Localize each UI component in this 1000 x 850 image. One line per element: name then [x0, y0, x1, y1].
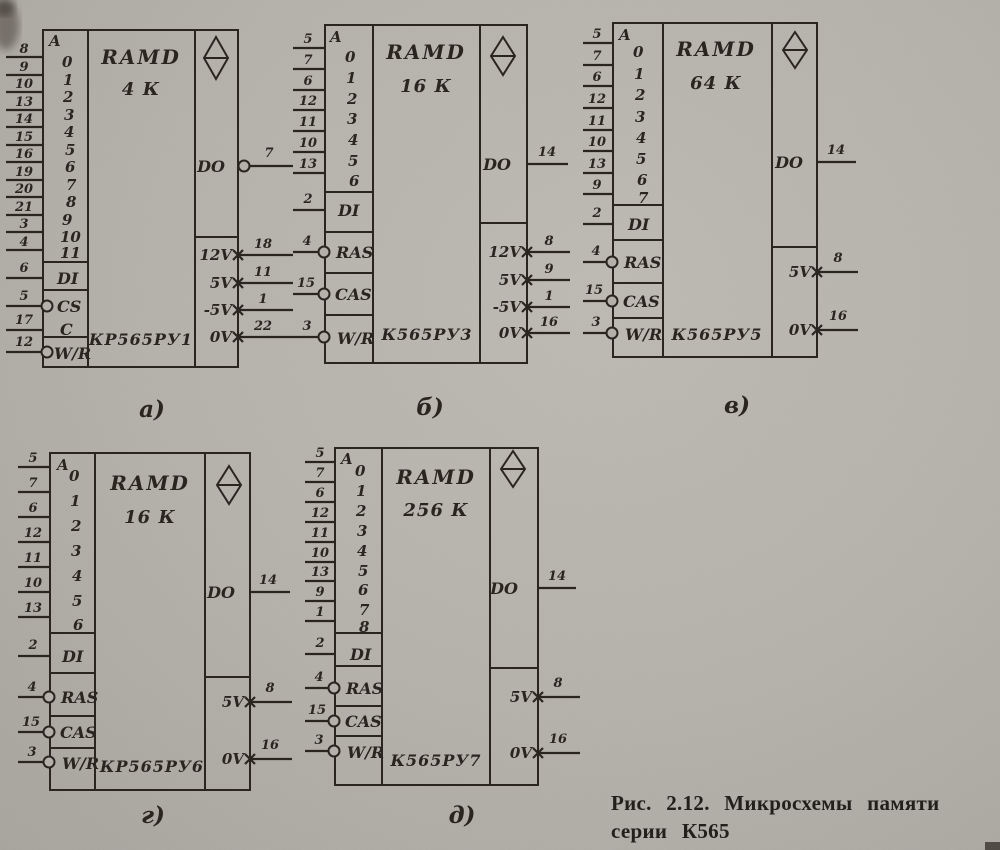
- addr-bit-label: 4: [72, 567, 82, 585]
- ras-pin-number: 4: [302, 234, 311, 249]
- wr-pin-number: 3: [302, 319, 311, 334]
- addr-pin-number: 5: [28, 451, 37, 466]
- addr-pin-number: 13: [24, 601, 42, 616]
- power-pin-number: 1: [544, 289, 553, 304]
- power-label-0v: 0V: [789, 321, 812, 339]
- diagram-letter: д): [449, 802, 476, 829]
- chip-name: КР565РУ6: [99, 757, 204, 776]
- inversion-bubble-cas: [44, 727, 55, 738]
- di-label: DI: [337, 201, 360, 220]
- addr-header: A: [47, 32, 61, 50]
- addr-bit-label: 3: [357, 522, 367, 540]
- addr-pin-number: 6: [28, 501, 37, 516]
- addr-pin-number: 13: [15, 95, 33, 110]
- addr-bit-label: 3: [71, 542, 81, 560]
- addr-header: A: [617, 26, 631, 44]
- size-label: 64 К: [690, 73, 742, 94]
- di-label: DI: [627, 215, 650, 234]
- diagram-letter: а): [139, 396, 165, 423]
- addr-bit-label: 0: [633, 43, 644, 61]
- cas-label: CAS: [335, 285, 372, 304]
- addr-pin-number: 3: [19, 217, 28, 232]
- cas-pin-number: 15: [308, 703, 326, 718]
- addr-bit-label: 5: [636, 150, 646, 168]
- power-pin-number: 8: [553, 676, 562, 691]
- power-pin-number: 16: [261, 738, 279, 753]
- c-label: C: [60, 320, 73, 339]
- addr-pin-number: 6: [303, 74, 312, 89]
- chip-name: К565РУ7: [389, 751, 481, 770]
- size-label: 256 К: [402, 500, 468, 521]
- addr-pin-number: 10: [24, 576, 42, 591]
- addr-bit-label: 5: [348, 152, 358, 170]
- addr-bit-label: 7: [638, 189, 649, 207]
- cs-label: CS: [57, 297, 81, 316]
- page-corner-mark: [985, 842, 1000, 850]
- do-label: DO: [482, 155, 511, 174]
- power-label-0v: 0V: [222, 750, 245, 768]
- addr-bit-label: 1: [356, 482, 366, 500]
- addr-pin-number: 6: [315, 486, 324, 501]
- cas-pin-number: 15: [22, 715, 40, 730]
- chip-name: К565РУ3: [380, 325, 472, 344]
- func-label: RAMD: [100, 45, 181, 69]
- addr-pin-number: 21: [14, 200, 33, 215]
- addr-bit-label: 6: [637, 171, 648, 189]
- addr-pin-number: 12: [311, 506, 329, 521]
- di-pin-number: 6: [19, 261, 28, 276]
- addr-pin-number: 10: [311, 546, 329, 561]
- ras-label: RAS: [335, 243, 373, 262]
- power-label-5v: 5V: [210, 274, 233, 292]
- chip-name: К565РУ5: [670, 325, 762, 344]
- wr-label: W/R: [337, 329, 374, 348]
- addr-pin-number: 15: [15, 130, 33, 145]
- func-label: RAMD: [395, 465, 476, 489]
- addr-pin-number: 10: [299, 136, 317, 151]
- power-pin-number: 8: [833, 251, 842, 266]
- addr-bit-label: 4: [636, 129, 646, 147]
- wr-label: W/R: [625, 325, 662, 344]
- addr-pin-number: 7: [28, 476, 37, 491]
- power-label-0v: 0V: [499, 324, 522, 342]
- inversion-bubble-cas: [607, 296, 618, 307]
- addr-pin-number: 11: [299, 115, 317, 130]
- do-pin-number: 14: [259, 573, 277, 588]
- power-label-5v: 5V: [499, 271, 522, 289]
- power-label-5v: 5V: [510, 688, 533, 706]
- addr-pin-number: 11: [24, 551, 42, 566]
- addr-pin-number: 1: [315, 605, 324, 620]
- power-label-minus5v: -5V: [493, 298, 523, 316]
- ras-label: RAS: [623, 253, 661, 272]
- c-pin-number: 17: [15, 313, 33, 328]
- power-pin-number: 18: [254, 237, 272, 252]
- size-label: 16 К: [400, 76, 452, 97]
- inversion-bubble-ras: [319, 247, 330, 258]
- inversion-bubble-wr: [607, 328, 618, 339]
- addr-pin-number: 6: [592, 70, 601, 85]
- addr-bit-label: 3: [347, 110, 357, 128]
- addr-bit-label: 1: [346, 69, 356, 87]
- wr-pin-number: 12: [15, 335, 33, 350]
- figure-canvas: A 0 1 2 3 4 5 6 7 8 9 10 11 8 9 10 13 14…: [0, 0, 1000, 850]
- addr-header: A: [328, 28, 342, 46]
- cs-pin-number: 5: [19, 289, 28, 304]
- power-label-0v: 0V: [210, 328, 233, 346]
- scanned-book-page: A 0 1 2 3 4 5 6 7 8 9 10 11 8 9 10 13 14…: [0, 0, 1000, 850]
- addr-pin-number: 5: [303, 32, 312, 47]
- power-label-5v: 5V: [789, 263, 812, 281]
- addr-bit-label: 7: [66, 176, 77, 194]
- power-pin-number: 8: [544, 234, 553, 249]
- do-label: DO: [196, 157, 225, 176]
- addr-pin-number: 5: [592, 27, 601, 42]
- addr-bit-label: 6: [73, 616, 84, 634]
- di-pin-number: 2: [314, 636, 324, 651]
- addr-pin-number: 12: [24, 526, 42, 541]
- addr-bit-label: 5: [72, 592, 82, 610]
- inversion-bubble-cas: [319, 289, 330, 300]
- power-pin-number: 8: [265, 681, 274, 696]
- power-label-5v: 5V: [222, 693, 245, 711]
- cas-label: CAS: [623, 292, 660, 311]
- addr-bit-label: 1: [70, 492, 80, 510]
- addr-pin-number: 10: [588, 135, 606, 150]
- power-label-12v: 12V: [199, 246, 233, 264]
- addr-bit-label: 3: [64, 106, 74, 124]
- wr-pin-number: 3: [591, 315, 600, 330]
- ras-label: RAS: [60, 688, 98, 707]
- ras-pin-number: 4: [591, 244, 600, 259]
- addr-pin-number: 13: [588, 157, 606, 172]
- inversion-bubble-wr: [42, 347, 53, 358]
- addr-pin-number: 20: [14, 182, 33, 197]
- addr-bit-label: 2: [346, 90, 357, 108]
- addr-pin-number: 11: [311, 526, 329, 541]
- inversion-bubble-ras: [607, 257, 618, 268]
- addr-bit-label: 8: [66, 193, 77, 211]
- paper-grain: [0, 0, 1000, 850]
- addr-pin-number: 13: [311, 565, 329, 580]
- wr-label: W/R: [347, 743, 384, 762]
- addr-bit-label: 0: [69, 467, 80, 485]
- cas-pin-number: 15: [297, 276, 315, 291]
- wr-pin-number: 3: [314, 733, 323, 748]
- addr-pin-number: 19: [15, 165, 33, 180]
- addr-pin-number: 14: [15, 112, 33, 127]
- do-pin-number: 14: [538, 145, 556, 160]
- power-pin-number: 9: [544, 262, 553, 277]
- do-label: DO: [206, 583, 235, 602]
- addr-bit-label: 6: [65, 158, 76, 176]
- di-label: DI: [56, 269, 79, 288]
- wr-label: W/R: [54, 344, 91, 363]
- ras-pin-number: 4: [27, 680, 36, 695]
- addr-pin-number: 5: [315, 446, 324, 461]
- power-pin-number: 16: [549, 732, 567, 747]
- addr-bit-label: 2: [70, 517, 81, 535]
- addr-pin-number: 12: [588, 92, 606, 107]
- inversion-bubble-cas: [329, 716, 340, 727]
- ras-label: RAS: [345, 679, 383, 698]
- figure-caption-line1: Рис. 2.12. Микросхемы памяти: [611, 791, 940, 815]
- di-pin-number: 2: [302, 192, 312, 207]
- power-pin-number: 16: [540, 315, 558, 330]
- cas-label: CAS: [345, 712, 382, 731]
- addr-pin-number: 9: [19, 60, 28, 75]
- inversion-bubble-wr: [44, 757, 55, 768]
- addr-bit-label: 0: [62, 53, 73, 71]
- addr-header: A: [55, 456, 69, 474]
- do-pin-number: 14: [827, 143, 845, 158]
- addr-pin-number: 16: [15, 147, 33, 162]
- addr-bit-label: 2: [355, 502, 366, 520]
- do-label: DO: [774, 153, 803, 172]
- chip-name: КР565РУ1: [88, 330, 193, 349]
- power-label-12v: 12V: [488, 243, 522, 261]
- inversion-bubble-ras: [44, 692, 55, 703]
- func-label: RAMD: [109, 471, 190, 495]
- addr-bit-label: 9: [62, 211, 73, 229]
- do-pin-number: 7: [264, 146, 273, 161]
- addr-pin-number: 4: [19, 235, 28, 250]
- wr-label: W/R: [62, 754, 99, 773]
- addr-bit-label: 5: [65, 141, 75, 159]
- inversion-bubble-wr: [319, 332, 330, 343]
- addr-bit-label: 1: [63, 71, 73, 89]
- diagram-letter: г): [141, 802, 165, 829]
- di-label: DI: [61, 647, 84, 666]
- power-pin-number: 11: [254, 265, 272, 280]
- addr-bit-label: 1: [634, 65, 644, 83]
- di-label: DI: [349, 645, 372, 664]
- wr-pin-number: 3: [27, 745, 36, 760]
- inversion-bubble-wr: [329, 746, 340, 757]
- addr-bit-label: 3: [635, 108, 645, 126]
- addr-pin-number: 7: [303, 53, 312, 68]
- addr-pin-number: 11: [588, 114, 606, 129]
- addr-bit-label: 8: [359, 618, 370, 636]
- di-pin-number: 2: [591, 206, 601, 221]
- inversion-bubble-cs: [42, 301, 53, 312]
- addr-pin-number: 10: [15, 77, 33, 92]
- addr-bit-label: 4: [64, 123, 74, 141]
- addr-pin-number: 7: [315, 466, 324, 481]
- addr-pin-number: 8: [19, 42, 28, 57]
- figure-caption-line2: серии К565: [611, 819, 730, 843]
- addr-bit-label: 0: [355, 462, 366, 480]
- do-pin-number: 14: [548, 569, 566, 584]
- inversion-bubble-ras: [329, 683, 340, 694]
- addr-bit-label: 11: [60, 244, 81, 262]
- power-label-0v: 0V: [510, 744, 533, 762]
- ras-pin-number: 4: [314, 670, 323, 685]
- addr-bit-label: 6: [358, 581, 369, 599]
- addr-bit-label: 7: [359, 601, 370, 619]
- addr-bit-label: 2: [634, 86, 645, 104]
- addr-pin-number: 13: [299, 157, 317, 172]
- cas-pin-number: 15: [585, 283, 603, 298]
- power-label-minus5v: -5V: [204, 301, 234, 319]
- func-label: RAMD: [675, 37, 756, 61]
- addr-pin-number: 9: [592, 178, 601, 193]
- func-label: RAMD: [385, 40, 466, 64]
- addr-pin-number: 7: [592, 49, 601, 64]
- addr-header: A: [339, 450, 353, 468]
- addr-pin-number: 9: [315, 585, 324, 600]
- addr-bit-label: 4: [357, 542, 367, 560]
- addr-bit-label: 2: [62, 88, 73, 106]
- size-label: 4 К: [122, 79, 160, 100]
- power-pin-number: 22: [253, 319, 272, 334]
- addr-pin-number: 12: [299, 94, 317, 109]
- diagram-letter: б): [416, 394, 444, 421]
- addr-bit-label: 0: [345, 48, 356, 66]
- do-label: DO: [489, 579, 518, 598]
- power-pin-number: 1: [258, 292, 267, 307]
- power-pin-number: 16: [829, 309, 847, 324]
- cas-label: CAS: [60, 723, 97, 742]
- addr-bit-label: 5: [358, 562, 368, 580]
- size-label: 16 К: [124, 507, 176, 528]
- diagram-letter: в): [724, 392, 750, 419]
- addr-bit-label: 6: [349, 172, 360, 190]
- inversion-bubble-do: [239, 161, 250, 172]
- addr-bit-label: 4: [348, 131, 358, 149]
- di-pin-number: 2: [27, 638, 37, 653]
